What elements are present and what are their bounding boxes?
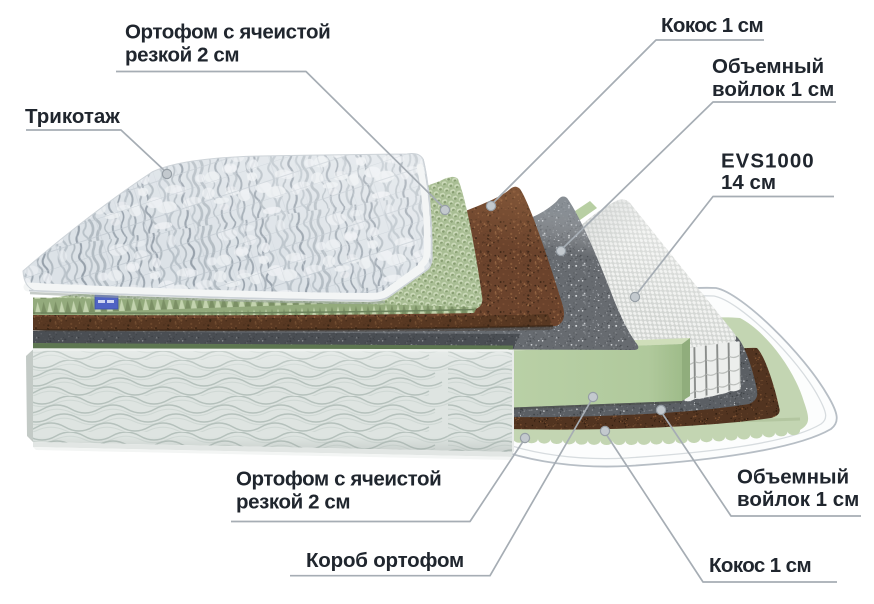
svg-text:Объемный: Объемный [737, 466, 849, 489]
svg-text:EVS1000: EVS1000 [721, 150, 815, 173]
svg-text:резкой 2 см: резкой 2 см [236, 491, 350, 514]
svg-text:резкой 2 см: резкой 2 см [125, 44, 239, 67]
svg-text:Ортофом с ячеистой: Ортофом с ячеистой [236, 468, 441, 491]
svg-text:войлок 1 см: войлок 1 см [737, 488, 859, 511]
svg-text:Ортофом с ячеистой: Ортофом с ячеистой [125, 21, 330, 44]
svg-text:войлок 1 см: войлок 1 см [712, 78, 834, 101]
svg-text:Трикотаж: Трикотаж [25, 105, 120, 128]
svg-text:Объемный: Объемный [712, 55, 824, 78]
svg-text:Кокос 1 см: Кокос 1 см [661, 14, 763, 37]
svg-text:14 см: 14 см [721, 171, 776, 194]
svg-text:Кокос 1 см: Кокос 1 см [709, 554, 811, 577]
svg-text:Короб ортофом: Короб ортофом [306, 549, 464, 572]
